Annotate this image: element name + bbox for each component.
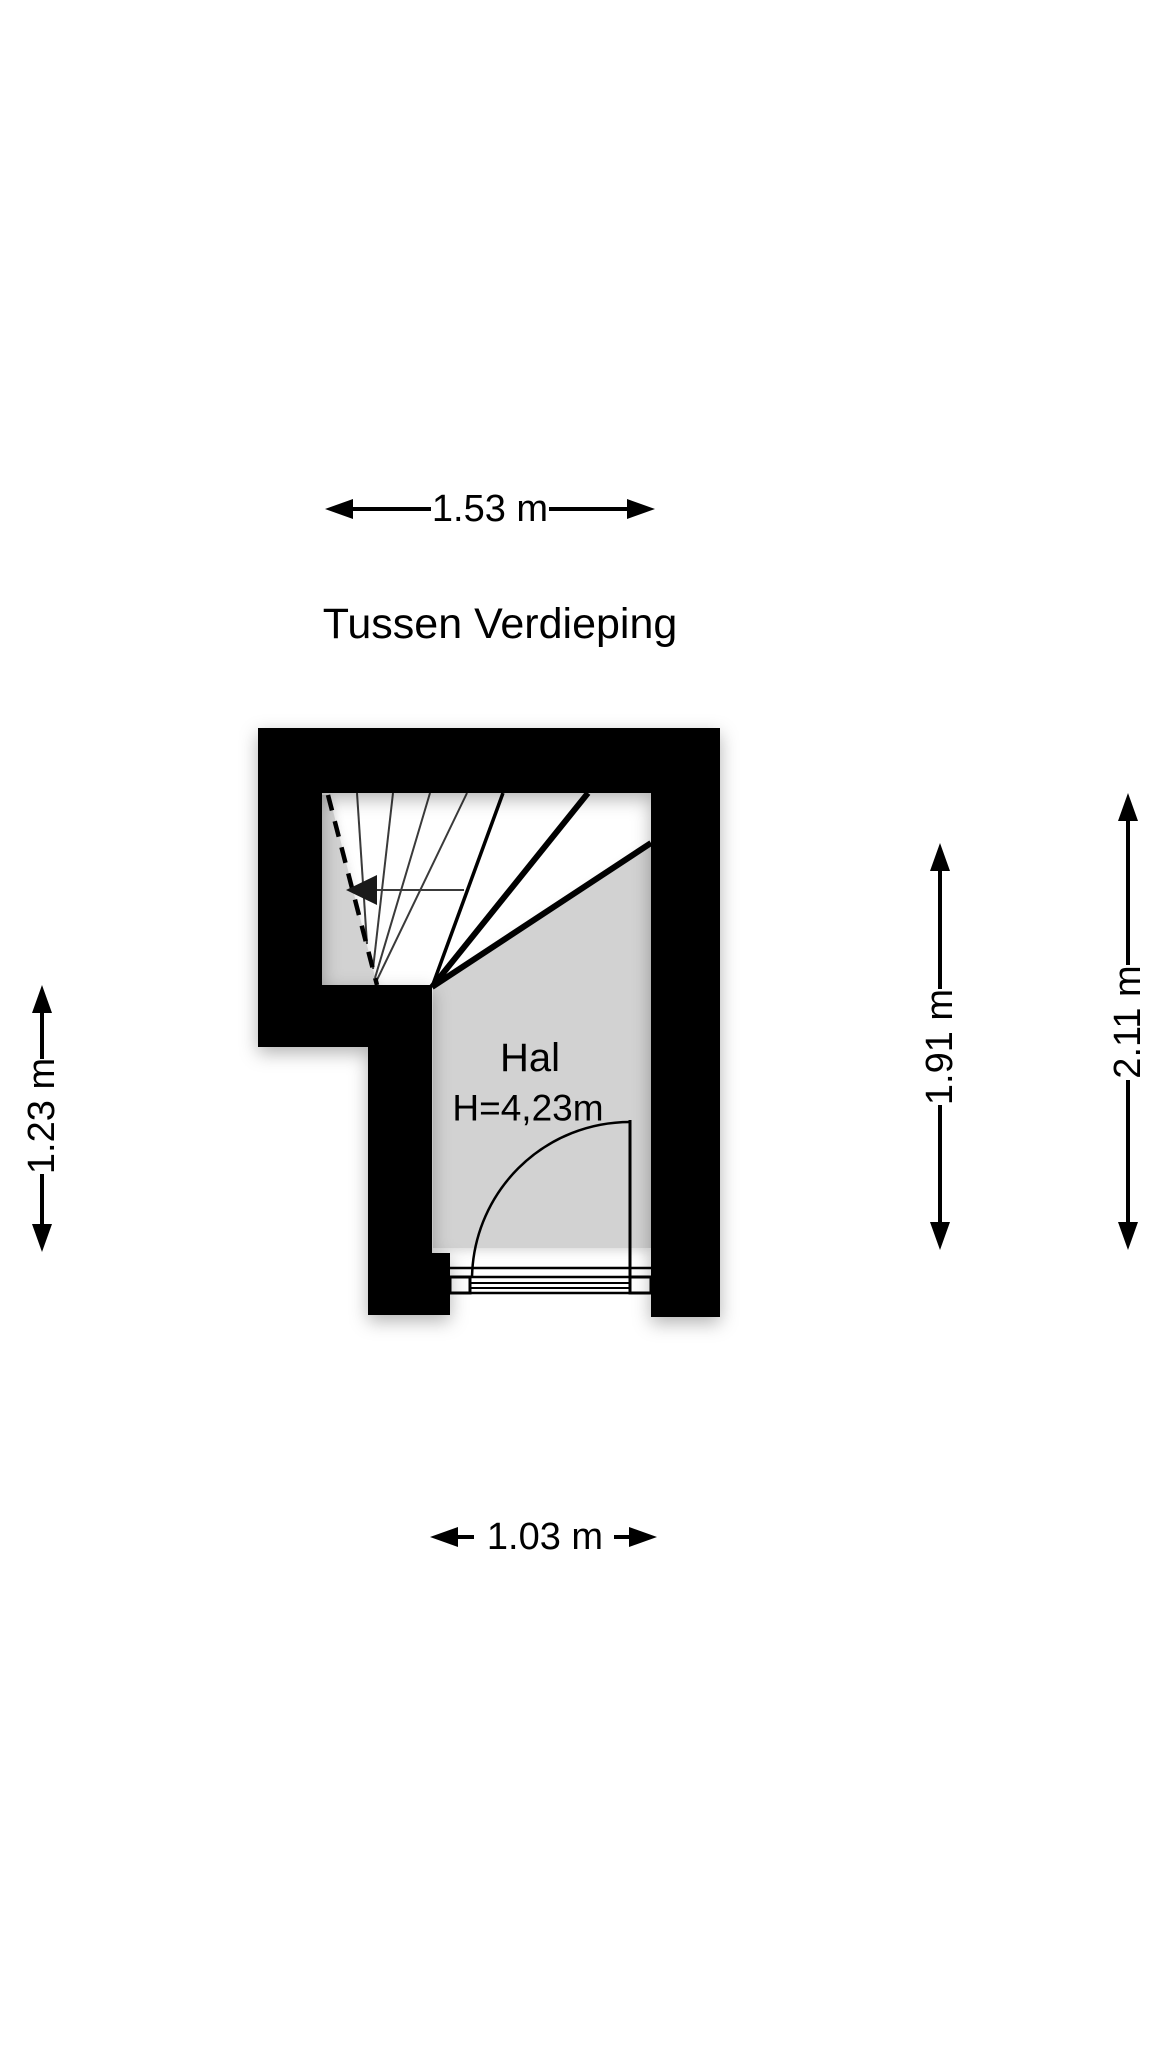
dimension-top: 1.53 m: [325, 488, 655, 530]
arrow-left-icon: [325, 499, 353, 519]
dimension-top-label: 1.53 m: [432, 488, 548, 530]
wall-left-upper: [258, 793, 322, 985]
floor-plan-page: 1.53 m Tussen Verdieping: [0, 0, 1152, 2048]
floor-plan-canvas: 1.53 m Tussen Verdieping: [0, 0, 1152, 2048]
arrow-right-icon: [627, 499, 655, 519]
dimension-line: [40, 1011, 44, 1059]
wall-right: [651, 793, 720, 1317]
arrow-down-icon: [1118, 1222, 1138, 1250]
arrow-left-icon: [430, 1527, 458, 1547]
dimension-line: [456, 1535, 474, 1539]
dimension-line: [351, 507, 431, 511]
threshold-band: [470, 1277, 630, 1293]
page-title: Tussen Verdieping: [323, 600, 678, 648]
arrow-down-icon: [32, 1224, 52, 1252]
room-height-label: H=4,23m: [452, 1088, 603, 1129]
wall-top: [258, 728, 720, 793]
dimension-left-label: 1.23 m: [21, 1058, 63, 1174]
dimension-line: [938, 1105, 942, 1224]
arrow-up-icon: [32, 985, 52, 1013]
arrow-up-icon: [930, 843, 950, 871]
dimension-line: [549, 507, 629, 511]
threshold-right-block: [630, 1277, 651, 1293]
dimension-right-outer: 2.11 m: [1107, 793, 1149, 1250]
dimension-right-inner: 1.91 m: [919, 843, 961, 1250]
wall-bottom-left-pillar: [368, 1253, 450, 1315]
arrow-down-icon: [930, 1222, 950, 1250]
threshold-left-block: [450, 1277, 470, 1293]
dimension-line: [1126, 1080, 1130, 1224]
dimension-line: [938, 869, 942, 989]
room-name-label: Hal: [500, 1036, 560, 1080]
arrow-right-icon: [629, 1527, 657, 1547]
dimension-bottom-label: 1.03 m: [487, 1516, 603, 1558]
dimension-line: [1126, 819, 1130, 965]
dimension-line: [40, 1174, 44, 1224]
dimension-left: 1.23 m: [21, 985, 63, 1252]
dimension-bottom: 1.03 m: [430, 1516, 657, 1558]
wall-left-stub: [258, 985, 432, 1047]
arrow-up-icon: [1118, 793, 1138, 821]
dimension-right-outer-label: 2.11 m: [1107, 965, 1149, 1078]
dimension-right-inner-label: 1.91 m: [919, 989, 961, 1105]
